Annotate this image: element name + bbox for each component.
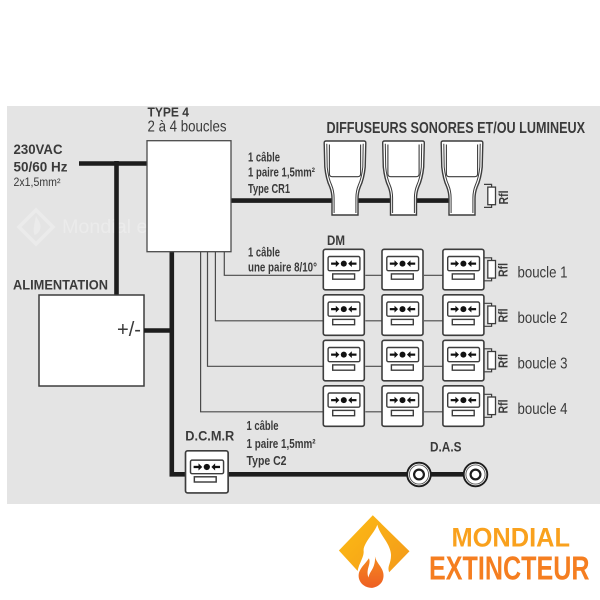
svg-text:+/-: +/- [117, 318, 141, 341]
svg-text:Rfl: Rfl [496, 400, 511, 414]
svg-text:boucle 3: boucle 3 [518, 355, 568, 372]
svg-text:TYPE 4: TYPE 4 [148, 105, 190, 120]
svg-text:D.C.M.R: D.C.M.R [185, 429, 234, 444]
svg-text:Type C2: Type C2 [247, 453, 287, 468]
svg-text:DM: DM [327, 232, 345, 248]
svg-text:Rfl: Rfl [496, 191, 511, 205]
svg-text:Type CR1: Type CR1 [248, 181, 290, 196]
svg-text:DIFFUSEURS SONORES ET/OU LUMIN: DIFFUSEURS SONORES ET/OU LUMINEUX [327, 120, 586, 137]
svg-text:MONDIAL: MONDIAL [452, 523, 571, 553]
svg-text:Rfl: Rfl [496, 309, 511, 323]
svg-text:230VAC: 230VAC [14, 141, 63, 157]
svg-text:Rfl: Rfl [496, 354, 511, 368]
svg-text:D.A.S: D.A.S [430, 440, 462, 455]
svg-text:2 à 4 boucles: 2 à 4 boucles [148, 119, 227, 136]
svg-text:50/60 Hz: 50/60 Hz [14, 158, 68, 174]
svg-text:EXTINCTEUR: EXTINCTEUR [429, 551, 590, 588]
svg-text:boucle 2: boucle 2 [518, 310, 568, 327]
svg-text:Rfl: Rfl [496, 263, 511, 277]
svg-text:1 paire 1,5mm²: 1 paire 1,5mm² [247, 436, 317, 451]
svg-text:1 paire 1,5mm²: 1 paire 1,5mm² [248, 165, 315, 180]
svg-text:2x1,5mm²: 2x1,5mm² [14, 177, 61, 189]
svg-text:1 câble: 1 câble [247, 418, 279, 433]
svg-text:1 câble: 1 câble [248, 150, 280, 165]
svg-text:1 câble: 1 câble [248, 245, 280, 260]
svg-text:une paire 8/10°: une paire 8/10° [248, 260, 317, 275]
svg-text:boucle 4: boucle 4 [518, 401, 568, 418]
svg-text:ALIMENTATION: ALIMENTATION [13, 277, 108, 293]
svg-text:boucle 1: boucle 1 [518, 264, 568, 281]
